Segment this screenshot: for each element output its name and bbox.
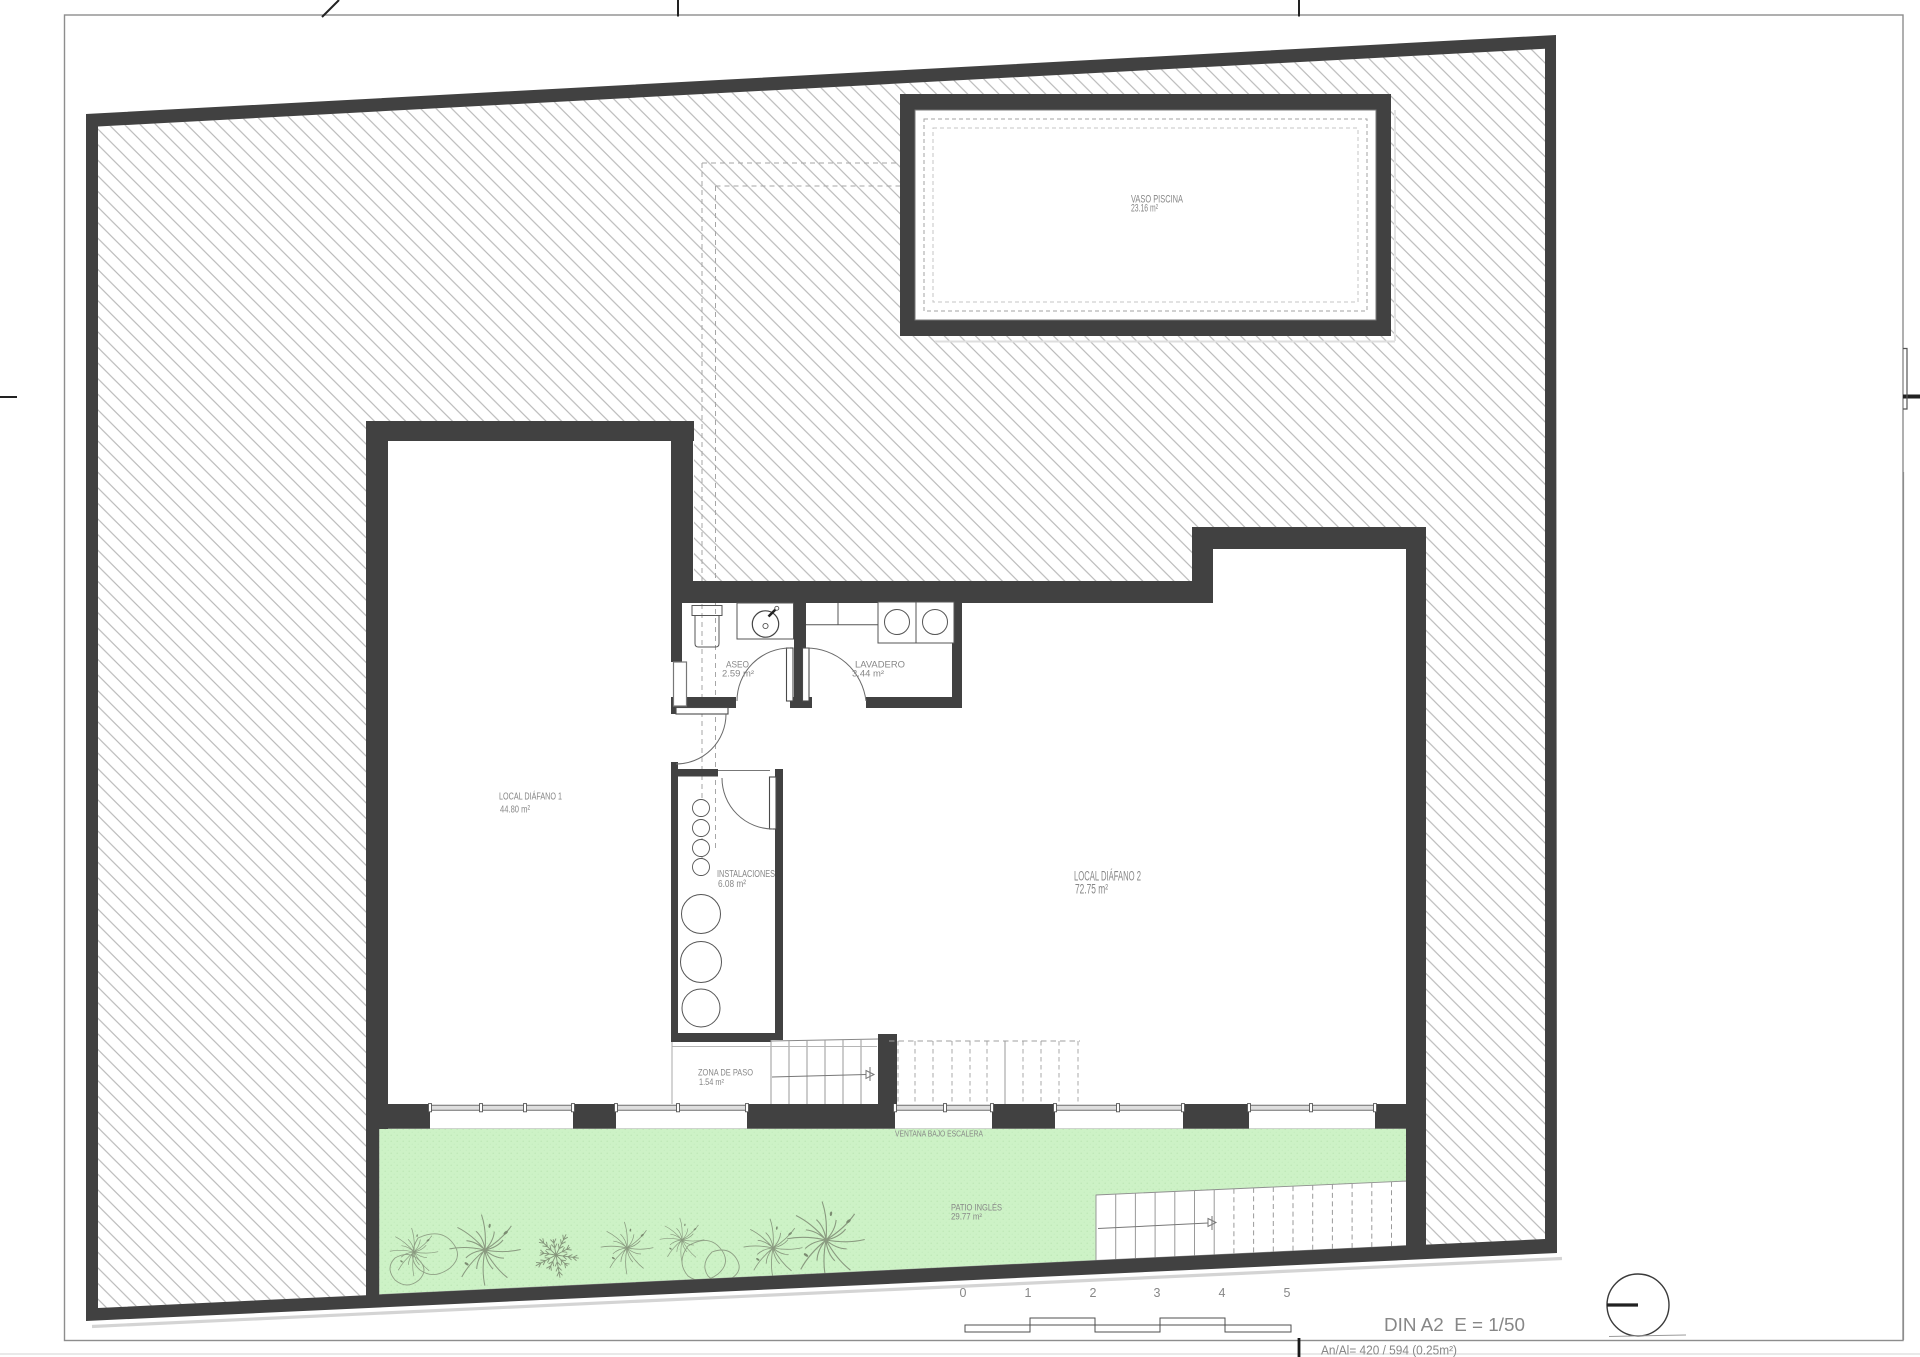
svg-text:An/Al= 420 / 594 (0.25m²): An/Al= 420 / 594 (0.25m²) bbox=[1321, 1342, 1457, 1357]
svg-text:0: 0 bbox=[960, 1286, 967, 1300]
svg-text:6.08 m²: 6.08 m² bbox=[718, 879, 747, 890]
svg-text:ZONA DE PASO: ZONA DE PASO bbox=[698, 1068, 753, 1078]
svg-text:VENTANA BAJO ESCALERA: VENTANA BAJO ESCALERA bbox=[895, 1130, 984, 1139]
svg-text:2: 2 bbox=[1090, 1286, 1097, 1300]
svg-text:2.59 m²: 2.59 m² bbox=[722, 669, 754, 679]
svg-text:5: 5 bbox=[1284, 1286, 1291, 1300]
svg-text:4: 4 bbox=[1219, 1286, 1226, 1300]
svg-text:1.54 m²: 1.54 m² bbox=[699, 1077, 724, 1087]
svg-text:44.80 m²: 44.80 m² bbox=[500, 804, 530, 816]
svg-text:LOCAL DIÁFANO 1: LOCAL DIÁFANO 1 bbox=[499, 790, 562, 803]
svg-text:72.75 m²: 72.75 m² bbox=[1075, 882, 1108, 897]
svg-text:1: 1 bbox=[1025, 1286, 1032, 1300]
svg-text:29.77 m²: 29.77 m² bbox=[951, 1212, 982, 1222]
svg-text:23.16 m²: 23.16 m² bbox=[1131, 203, 1158, 215]
svg-text:DIN A2 E = 1/50: DIN A2 E = 1/50 bbox=[1384, 1315, 1525, 1335]
svg-text:3: 3 bbox=[1154, 1286, 1161, 1300]
svg-text:3.44 m²: 3.44 m² bbox=[852, 669, 884, 679]
